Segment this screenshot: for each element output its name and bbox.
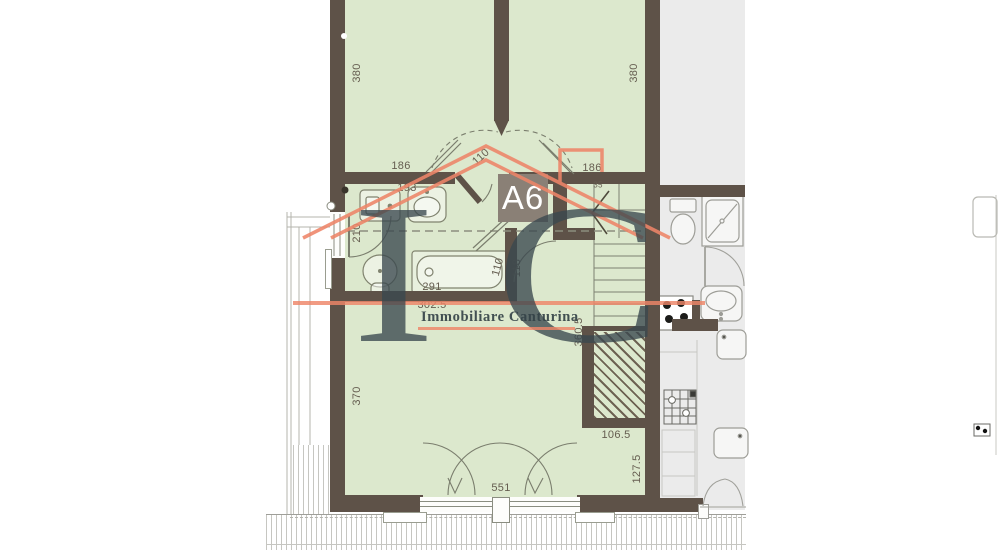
neighbor-bath-door bbox=[705, 247, 744, 286]
dim-left-window: 210 bbox=[351, 223, 363, 242]
bathroom-door bbox=[456, 174, 492, 202]
dim-wall-right: 380 bbox=[628, 63, 640, 82]
dim-living-width: 551 bbox=[491, 482, 510, 494]
dim-bedroom-right: 186 bbox=[582, 162, 601, 174]
dim-stairwell: 360.5 bbox=[573, 317, 585, 346]
dim-bathroom-width: 302.5 bbox=[417, 299, 446, 311]
bedroom-door-swings bbox=[426, 130, 574, 174]
floorplan-image: 380 380 186 110 186 35 193 210 291 302.5… bbox=[0, 0, 1000, 550]
dim-living-height: 370 bbox=[351, 386, 363, 405]
stair-direction-arrow bbox=[592, 191, 609, 234]
dim-void-width: 106.5 bbox=[601, 429, 630, 441]
dim-wall-left: 380 bbox=[351, 63, 363, 82]
partition-wall-tip bbox=[494, 120, 509, 136]
dim-bathtub: 291 bbox=[422, 281, 441, 293]
dim-bedroom-left: 186 bbox=[391, 160, 410, 172]
neighbor-entry-door bbox=[700, 479, 746, 507]
wall-joint-markers bbox=[341, 33, 349, 194]
dim-stair-start: 35 bbox=[593, 181, 603, 190]
dim-void-height: 127.5 bbox=[631, 454, 643, 483]
unit-label: A6 bbox=[498, 174, 548, 222]
dim-bath-sink: 193 bbox=[397, 182, 416, 194]
dim-landing-width: 118 bbox=[511, 259, 523, 277]
